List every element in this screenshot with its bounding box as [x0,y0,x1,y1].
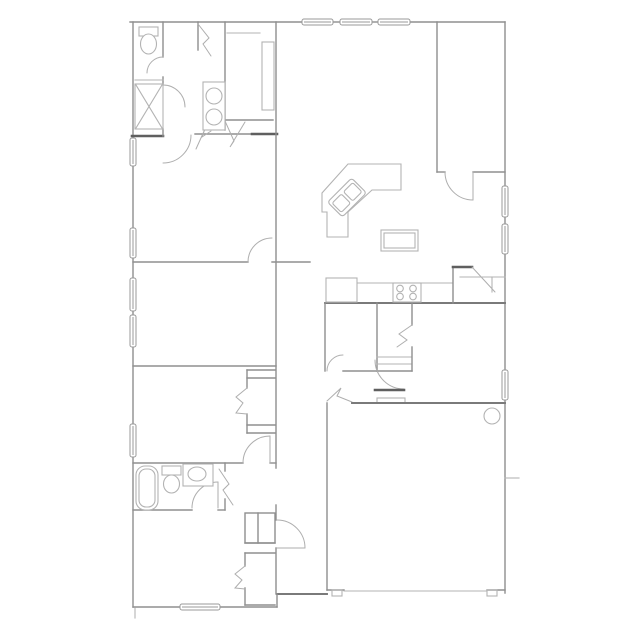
door-arc-bedroom3 [243,436,270,463]
floor-plan-drawing [0,0,639,639]
toilet-master-bowl [141,34,157,54]
vanity-master [203,82,225,130]
master-closet-shelf [262,42,274,110]
door-arc-toilet-room [147,57,163,73]
floor-plan-page [0,0,639,639]
door-leaf-master-entry [196,129,211,149]
door-arc-master-rear [248,238,272,262]
fridge [326,278,357,302]
toilet-bath2-tank [162,466,181,475]
door-arc-master-entry [163,135,191,163]
door-arc-flexroom [445,172,473,200]
door-arc-shower-hall [163,85,185,107]
toilet-bath2-bowl [164,475,180,493]
water-heater [484,408,500,424]
door-leaf-bath-hall [198,24,211,56]
door-leaf-bath2-entry [219,469,233,505]
stove [393,283,421,302]
door-leaf-bedroom3-closet [236,388,247,414]
garage-entry-door-leaf [327,388,352,402]
door-arc-bedroom4 [277,520,305,548]
laundry-door-arc [327,355,343,371]
door-leaf-closet-column [235,566,245,589]
garage-door-stub-right [487,590,497,596]
closet-column-box [245,513,275,543]
hall-closet-bifold-leaf [397,325,412,347]
garage-door-stub-left [332,590,342,596]
